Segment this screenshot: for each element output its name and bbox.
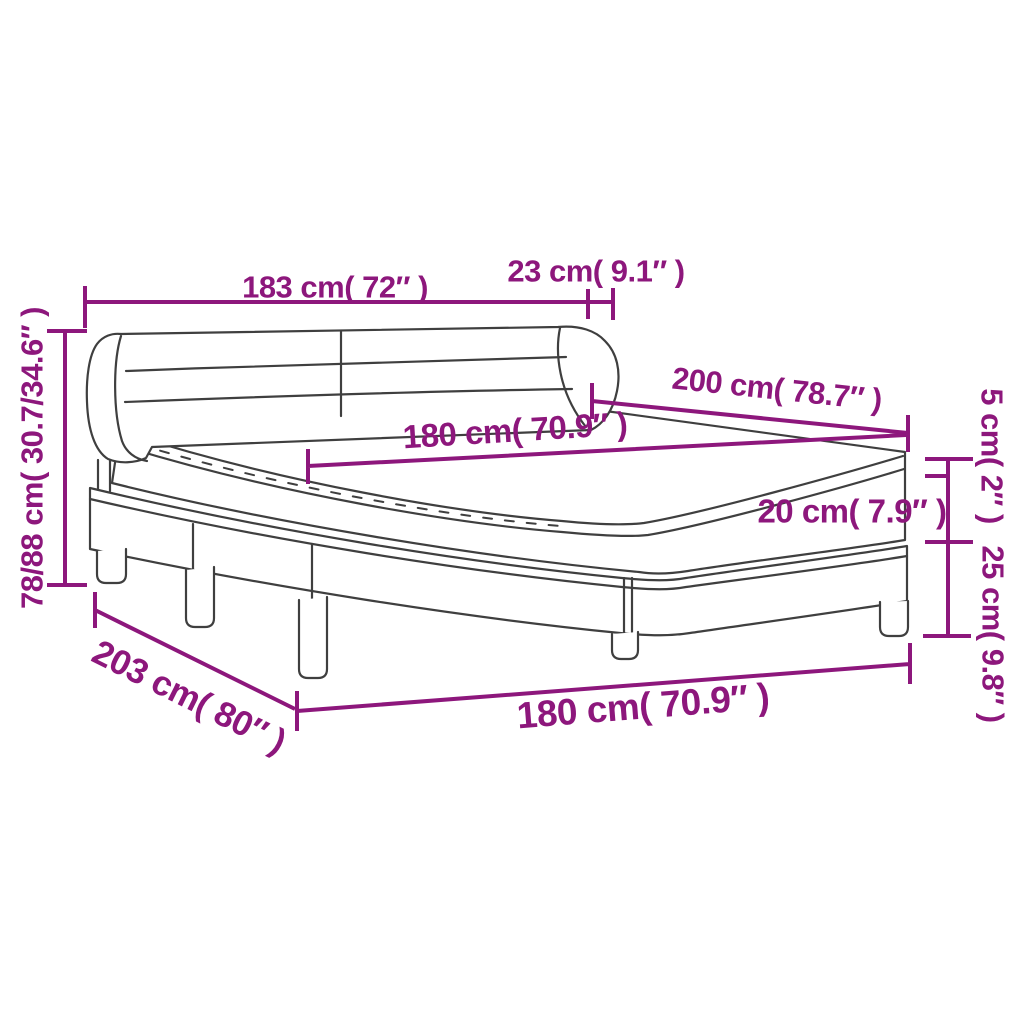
headboard-depth-label: 23 cm( 9.1″ ) [507, 254, 684, 289]
length-label: 200 cm( 78.7″ ) [670, 361, 883, 418]
dim-height-line [47, 331, 87, 585]
dim-height: 78/88 cm( 30.7/34.6″ ) [15, 307, 88, 609]
diagram-svg: 183 cm( 72″ ) 23 cm( 9.1″ ) 78/88 cm( 30… [0, 0, 1024, 1024]
dim-right-stack-line [923, 459, 973, 636]
headboard-leg [98, 460, 110, 491]
dim-headboard-width: 183 cm( 72″ ) 23 cm( 9.1″ ) [85, 254, 685, 329]
bed-dimension-diagram: 183 cm( 72″ ) 23 cm( 9.1″ ) 78/88 cm( 30… [0, 0, 1024, 1024]
footprint-width-label: 180 cm( 70.9″ ) [515, 676, 770, 737]
dim-footprint-width: 180 cm( 70.9″ ) [297, 643, 910, 736]
height-label: 78/88 cm( 30.7/34.6″ ) [15, 307, 50, 609]
bed-leg-front-corner [612, 632, 638, 659]
headboard-width-label: 183 cm( 72″ ) [242, 270, 428, 305]
mattress-thickness-label: 20 cm( 7.9″ ) [757, 493, 946, 530]
topper-thickness-label: 5 cm( 2″ ) [975, 388, 1010, 524]
bed-leg-right [880, 601, 908, 636]
bed-leg-far-left [97, 549, 126, 583]
bed-leg-middle [299, 597, 327, 678]
base-height-label: 25 cm( 9.8″ ) [976, 545, 1011, 722]
footprint-length-label: 203 cm( 80″ ) [86, 633, 292, 762]
bed-leg-left [186, 567, 214, 627]
